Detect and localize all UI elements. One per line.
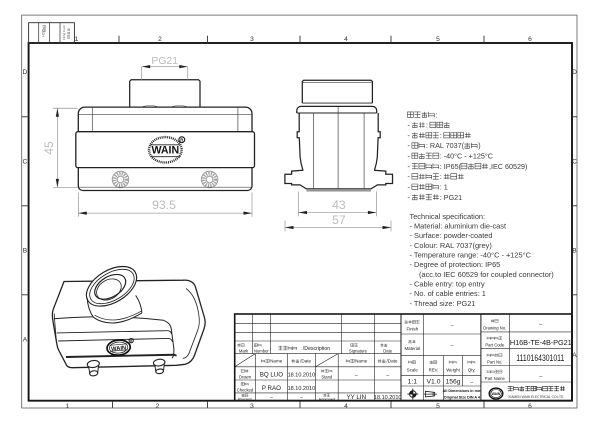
svg-text:Drawn: Drawn xyxy=(239,374,252,379)
svg-text:Scale: Scale xyxy=(407,367,419,372)
svg-text:43: 43 xyxy=(332,198,346,212)
svg-text:2: 2 xyxy=(156,403,160,410)
svg-text:4: 4 xyxy=(344,403,348,410)
svg-text:Stand: Stand xyxy=(321,374,333,379)
svg-text:Original Size DIN A 4: Original Size DIN A 4 xyxy=(444,395,481,399)
svg-text:WAIN: WAIN xyxy=(151,145,179,157)
svg-text:45: 45 xyxy=(42,141,56,155)
svg-text:/Name: /Name xyxy=(269,359,283,364)
svg-text:Part Name: Part Name xyxy=(485,376,506,381)
svg-text:PG21: PG21 xyxy=(151,56,178,67)
svg-text:Mark: Mark xyxy=(239,348,249,353)
svg-text:P RAO: P RAO xyxy=(262,385,281,392)
svg-text:H16B-TE-4B-PG21: H16B-TE-4B-PG21 xyxy=(510,338,572,347)
svg-text:18.10.2010: 18.10.2010 xyxy=(288,373,316,379)
svg-text:YY LIN: YY LIN xyxy=(347,394,367,401)
svg-text:Process: Process xyxy=(238,396,252,401)
svg-text:–: – xyxy=(300,395,303,401)
svg-text:: IP65(: : IP65( xyxy=(440,162,462,171)
svg-text:Weight: Weight xyxy=(446,367,460,372)
svg-text:Number: Number xyxy=(254,348,269,353)
svg-text:5: 5 xyxy=(436,403,440,410)
svg-text:Technical specification:: Technical specification: xyxy=(410,212,486,221)
svg-text:- Temperature range: -40°C: - Temperature range: -40°C - +125°C xyxy=(410,251,532,260)
svg-text:6: 6 xyxy=(528,36,532,43)
svg-text:D: D xyxy=(572,69,577,76)
svg-text:–: – xyxy=(355,373,358,379)
svg-text:156g: 156g xyxy=(445,379,460,386)
svg-text:C: C xyxy=(572,159,577,166)
svg-text:B: B xyxy=(572,248,577,255)
svg-text:: -40°C - +125°C: : -40°C - +125°C xyxy=(440,152,493,161)
svg-text:XIAMEN WAIN ELECTRICAL CO.LTD: XIAMEN WAIN ELECTRICAL CO.LTD xyxy=(508,395,563,399)
svg-text:B: B xyxy=(23,248,28,255)
svg-text::: : xyxy=(440,131,442,140)
svg-text:1:1: 1:1 xyxy=(408,379,418,386)
svg-text:- Surface: powder-coated: - Surface: powder-coated xyxy=(410,231,493,240)
svg-text::: : xyxy=(426,121,428,130)
svg-text:,IEC 60529): ,IEC 60529) xyxy=(489,162,527,171)
svg-text:Qty.: Qty. xyxy=(468,367,476,372)
svg-text:Material: Material xyxy=(404,346,420,351)
svg-text:Checked: Checked xyxy=(237,387,254,392)
svg-text:4: 4 xyxy=(344,36,348,43)
svg-text:- Degree of protection: IP: - Degree of protection: IP65 xyxy=(410,260,501,269)
svg-text:57: 57 xyxy=(332,213,346,227)
svg-text:Signature: Signature xyxy=(349,348,368,353)
svg-text::: : xyxy=(435,110,437,119)
svg-text:A: A xyxy=(23,337,28,344)
svg-text:A: A xyxy=(572,352,577,359)
svg-text:18.10.2010: 18.10.2010 xyxy=(374,395,402,401)
svg-text:V1.0: V1.0 xyxy=(427,379,441,386)
svg-text:(acc.to IEC 60529 for coup: (acc.to IEC 60529 for coupled connector) xyxy=(419,270,554,279)
svg-text:: 1: : 1 xyxy=(440,182,448,191)
svg-text:- No. of cable entries: 1: - No. of cable entries: 1 xyxy=(410,289,486,298)
svg-text:1: 1 xyxy=(66,403,70,410)
svg-text:3: 3 xyxy=(250,403,254,410)
svg-text:: PG21: : PG21 xyxy=(440,193,462,202)
svg-text:/Description: /Description xyxy=(303,346,331,352)
svg-text:Finish: Finish xyxy=(406,326,418,331)
svg-text:Filing Card: Filing Card xyxy=(62,25,66,40)
svg-text:WAIN: WAIN xyxy=(492,392,501,396)
svg-text:/Date: /Date xyxy=(300,359,311,364)
svg-text:- Material: aluminium die-c: - Material: aluminium die-cast xyxy=(410,222,507,231)
svg-text:- Colour: RAL 7037(grey): - Colour: RAL 7037(grey) xyxy=(410,241,492,250)
svg-text:BQ LUO: BQ LUO xyxy=(260,372,284,379)
svg-text:All Dimensions in mm: All Dimensions in mm xyxy=(443,389,482,393)
svg-text:1110164301011: 1110164301011 xyxy=(516,353,564,363)
svg-text:2: 2 xyxy=(158,36,162,43)
svg-text::: : xyxy=(440,172,442,181)
svg-text:): ) xyxy=(478,141,480,150)
svg-text:- Thread size: PG21: - Thread size: PG21 xyxy=(410,299,476,308)
svg-text:–: – xyxy=(270,395,273,401)
svg-text:3: 3 xyxy=(250,36,254,43)
svg-text:–: – xyxy=(386,373,389,379)
svg-text:D: D xyxy=(23,69,28,76)
svg-text:Approved: Approved xyxy=(318,396,335,401)
svg-text:REV.: REV. xyxy=(429,367,439,372)
svg-text:C: C xyxy=(23,159,28,166)
svg-text:Part No.: Part No. xyxy=(487,360,502,365)
svg-text:1: 1 xyxy=(75,36,79,43)
svg-text:: RAL 7037(: : RAL 7037( xyxy=(426,141,465,150)
svg-text:- Cable entry: top entry: - Cable entry: top entry xyxy=(410,279,485,288)
svg-text:Part Code: Part Code xyxy=(485,343,505,348)
svg-text:/Date: /Date xyxy=(387,359,398,364)
svg-text:/Name: /Name xyxy=(354,359,368,364)
svg-text:Drawing No.: Drawing No. xyxy=(483,325,506,330)
svg-text:R: R xyxy=(180,137,183,142)
svg-text:5: 5 xyxy=(436,36,440,43)
svg-text:HDC/: HDC/ xyxy=(41,29,45,37)
svg-text:6: 6 xyxy=(528,403,532,410)
svg-text:Date: Date xyxy=(383,348,393,353)
svg-text:93.5: 93.5 xyxy=(152,198,176,212)
svg-text:18.10.2010: 18.10.2010 xyxy=(288,386,316,392)
